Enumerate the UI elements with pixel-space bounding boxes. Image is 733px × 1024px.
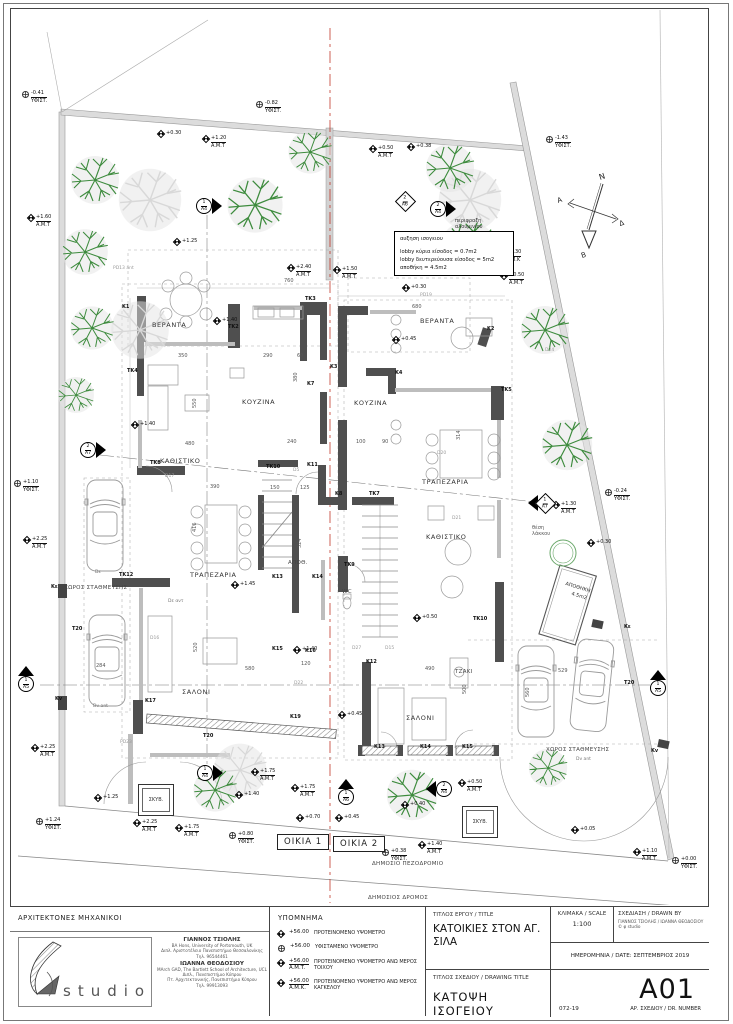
bin-label: ΣΚΥΒ.: [466, 810, 494, 834]
plan-label: D27: [352, 647, 361, 652]
ground-floor-note-box: αυξηση ισογειου lobby κύρια είσοδος = 0.…: [394, 231, 514, 276]
plan-label: 314: [457, 430, 463, 440]
target-elevation-icon: [278, 945, 285, 952]
plan-label: D20: [437, 452, 446, 457]
plan-label: 490: [425, 667, 435, 673]
plan-label: ΔΗΜΟΣΙΟΣ ΔΡΟΜΟΣ: [368, 895, 428, 901]
house1-label-box: ΟΙΚΙΑ 1: [277, 834, 329, 850]
elevation-marker: +0.45: [393, 336, 416, 343]
plan-label: 680: [412, 305, 422, 311]
elevation-marker: +2.25A.M.T: [134, 819, 157, 833]
proposed-elevation-icon: [338, 711, 346, 719]
studio-logo-text: studio: [63, 982, 151, 1000]
plan-label: D5: [293, 469, 299, 474]
section-marker: 2A6: [398, 194, 413, 209]
existing-elevation-icon: [22, 91, 29, 98]
plan-label: 90: [382, 440, 388, 446]
elevation-marker: +0.05: [572, 826, 595, 833]
elevation-marker: +1.60A.M.T: [28, 214, 51, 228]
plan-label: TK4: [127, 369, 138, 375]
house2-label-box: ΟΙΚΙΑ 2: [333, 836, 385, 852]
section-marker: 1A4: [197, 765, 223, 781]
plan-label: ΣΑΛΟΝΙ: [406, 715, 435, 722]
elevation-marker: +0.38: [408, 143, 431, 150]
plan-label: WC: [342, 589, 352, 595]
plan-label: D22: [294, 682, 303, 687]
plan-label: Kv: [55, 697, 62, 703]
proposed-elevation-icon: [291, 784, 299, 792]
date-value: ΗΜΕΡΟΜΗΝΙΑ / DATE: ΣΕΠΤΕΜΒΡΙΟΣ 2019: [571, 953, 690, 959]
plan-label: 380: [294, 372, 300, 382]
drawing-number-cell: A01 072-19 ΑΡ. ΣΧΕΔΙΟΥ / DR. NUMBER: [551, 969, 709, 1017]
section-marker: 1A5: [18, 666, 34, 692]
proposed-elevation-icon: [335, 814, 343, 822]
plan-label: 100: [356, 440, 366, 446]
drawing-number: A01: [639, 974, 695, 1005]
drawing-title-cell: ΤΙΤΛΟΣ ΣΧΕΔΙΟΥ / DRAWING TITLE ΚΑΤΟΨΗ ΙΣ…: [426, 969, 551, 1017]
plan-label: ΧΩΡΟΣ ΣΤΑΘΜΕΥΣΗΣ: [64, 585, 127, 591]
plan-label: K12: [366, 660, 377, 666]
elevation-marker: +1.75A.M.T: [292, 784, 315, 798]
legend-item: +56.00 ΠΡΟΤΕΙΝΟΜΕΝΟ ΥΨΟΜΕΤΡΟ: [278, 929, 417, 937]
plan-label: T20: [624, 681, 634, 687]
section-marker: 1A4: [196, 198, 222, 214]
drawn-by-value: ΓΙΑΝΝΟΣ ΤΣΙΟΛΗΣ / ΙΩΑΝΝΑ ΘΕΟΔΟΣΙΟΥ © φ s…: [618, 919, 705, 929]
plan-label: TK8: [150, 461, 161, 467]
legend-title: ΥΠΟΜΝΗΜΑ: [278, 914, 417, 922]
plan-label: 580: [245, 667, 255, 673]
proposed-elevation-icon: [458, 779, 466, 787]
proposed-elevation-icon: [333, 266, 341, 274]
plan-label: D24: [545, 349, 554, 354]
plan-label: 350: [178, 354, 188, 360]
proposed-elevation-icon: [133, 819, 141, 827]
plan-label: 125: [300, 486, 310, 492]
proposed-elevation-icon: [633, 848, 641, 856]
plan-label: K3: [330, 365, 337, 371]
elevation-marker: +0.00ΥΦΙΣΤ.: [672, 856, 697, 870]
elevation-marker: +1.24ΥΦΙΣΤ.: [36, 817, 61, 831]
section-marker: 2A7: [80, 442, 106, 458]
proposed-elevation-icon: [369, 145, 377, 153]
plan-label: TK9: [344, 563, 355, 569]
elevation-marker: +0.30: [588, 539, 611, 546]
proposed-elevation-icon: [131, 421, 139, 429]
elevation-marker: +1.10A.M.T: [634, 848, 657, 862]
plan-label: 480: [185, 442, 195, 448]
plan-label: 560: [526, 687, 532, 697]
note-line: lobby δευτερεύουσα είσοδος = 5m2: [400, 256, 508, 264]
elevation-marker: +0.45: [336, 814, 359, 821]
elevation-marker: +2.25A.M.T: [32, 744, 55, 758]
legend-item: +56.00 ΥΦΙΣΤΑΜΕΝΟ ΥΨΟΜΕΤΡΟ: [278, 943, 417, 952]
architects-heading: ΑΡΧΙΤΕΚΤΟΝΕΣ ΜΗΧΑΝΙΚΟΙ: [18, 914, 122, 922]
elevation-marker: +1.40: [214, 317, 237, 324]
elevation-marker: -1.43ΥΦΙΣΤ.: [546, 135, 571, 149]
plan-label: K14: [420, 745, 431, 751]
spot-elevation-icon: [277, 930, 285, 938]
proposed-elevation-icon: [213, 317, 221, 325]
plan-label: K17: [145, 699, 156, 705]
proposed-elevation-icon: [231, 581, 239, 589]
plan-label: D15: [385, 647, 394, 652]
plan-label: Dv ant: [576, 758, 591, 763]
plan-label: TK12: [119, 573, 133, 579]
proposed-elevation-icon: [571, 826, 579, 834]
plan-label: K15: [272, 647, 283, 653]
scale-cell: ΚΛΙΜΑΚΑ / SCALE 1:100: [551, 907, 614, 942]
proposed-elevation-icon: [27, 214, 35, 222]
plan-label: TK10: [473, 617, 487, 623]
plan-label: 284: [96, 664, 106, 670]
elevation-marker: -0.41ΥΦΙΣΤ.: [22, 90, 47, 104]
plan-label: TK7: [369, 492, 380, 498]
elevation-marker: +0.40: [402, 801, 425, 808]
plan-annotations: ΒΕΡΑΝΤΑΒΕΡΑΝΤΑΚΑΘΙΣΤΙΚΟΚΟΥΖΙΝΑΚΟΥΖΙΝΑΤΡΑ…: [0, 0, 733, 905]
legend-panel: ΥΠΟΜΝΗΜΑ +56.00 ΠΡΟΤΕΙΝΟΜΕΝΟ ΥΨΟΜΕΤΡΟ +5…: [270, 907, 426, 1016]
elevation-marker: +0.50: [414, 614, 437, 621]
project-title: ΚΑΤΟΙΚΙΕΣ ΣΤΟΝ ΑΓ. ΣΙΛΑ: [433, 923, 543, 949]
plan-label: TK5: [501, 388, 512, 394]
plan-label: περιφραξη αλουμινίου: [455, 218, 499, 230]
plan-label: Kε: [624, 625, 631, 631]
proposed-elevation-icon: [157, 130, 165, 138]
existing-elevation-icon: [36, 818, 43, 825]
elevation-marker: -0.82ΥΦΙΣΤ.: [256, 100, 281, 114]
section-marker: 1A5: [650, 670, 666, 696]
proposed-elevation-icon: [413, 614, 421, 622]
plan-label: K4: [395, 371, 402, 377]
elevation-marker: +2.40A.M.T: [288, 264, 311, 278]
project-number: 072-19: [559, 1006, 579, 1012]
plan-label: 150: [270, 486, 280, 492]
plan-label: ΔΗΜΟΣΙΟ ΠΕΖΟΔΡΟΜΙΟ: [372, 861, 443, 867]
plan-label: D16: [150, 637, 159, 642]
plan-label: 500: [463, 684, 469, 694]
existing-elevation-icon: [256, 101, 263, 108]
elevation-marker: +1.20A.M.T: [203, 135, 226, 149]
plan-label: T20: [72, 627, 82, 633]
plan-label: PD13 ant: [113, 267, 134, 272]
existing-elevation-icon: [605, 489, 612, 496]
section-marker: 1A6: [338, 779, 354, 805]
plan-label: K14: [312, 575, 323, 581]
elevation-marker: +0.50A.M.T: [370, 145, 393, 159]
plan-label: 760: [284, 279, 294, 285]
house2-label: ΟΙΚΙΑ 2: [340, 839, 378, 849]
plan-label: TK10: [266, 465, 280, 471]
proposed-elevation-icon: [418, 841, 426, 849]
section-marker: 2A4: [430, 201, 456, 217]
existing-elevation-icon: [229, 832, 236, 839]
elevation-marker: +0.70: [297, 814, 320, 821]
plan-label: TK2: [228, 325, 239, 331]
drawing-sheet: N A Δ B ΒΕΡΑΝΤΑΒΕΡΑΝΤΑΚΑΘΙΣΤΙΚΟΚΟΥΖΙΝΑΚΟ…: [0, 0, 733, 1024]
scale-label: ΚΛΙΜΑΚΑ / SCALE: [555, 911, 609, 917]
spot-elevation-icon: [277, 959, 285, 967]
elevation-marker: +0.80ΥΦΙΣΤ.: [229, 831, 254, 845]
plan-label: ΑΠΟΘ.: [288, 560, 308, 566]
existing-elevation-icon: [672, 857, 679, 864]
proposed-elevation-icon: [392, 336, 400, 344]
elevation-marker: +1.25: [95, 794, 118, 801]
bin-label: ΣΚΥΒ.: [142, 788, 170, 812]
drawn-by-cell: ΣΧΕΔΙΑΣΗ / DRAWN BY ΓΙΑΝΝΟΣ ΤΣΙΟΛΗΣ / ΙΩ…: [614, 907, 709, 942]
plan-label: Dε: [95, 571, 101, 576]
elevation-marker: +2.25A.M.T: [24, 536, 47, 550]
plan-label: ΧΩΡΟΣ ΣΤΑΘΜΕΥΣΗΣ: [546, 747, 609, 753]
note-title: αυξηση ισογειου: [400, 235, 508, 243]
proposed-elevation-icon: [31, 744, 39, 752]
bin-box-1: ΣΚΥΒ.: [138, 784, 174, 816]
plan-label: K13: [272, 575, 283, 581]
elevation-marker: +0.45: [339, 711, 362, 718]
proposed-elevation-icon: [287, 264, 295, 272]
proposed-elevation-icon: [173, 238, 181, 246]
elevation-marker: +1.10ΥΦΙΣΤ.: [14, 479, 39, 493]
project-title-cell: ΤΙΤΛΟΣ ΕΡΓΟΥ / TITLE ΚΑΤΟΙΚΙΕΣ ΣΤΟΝ ΑΓ. …: [426, 907, 551, 969]
plan-label: ΤΡΑΠΕΖΑΡΙΑ: [190, 572, 237, 579]
plan-label: TK3: [305, 297, 316, 303]
drawing-title-label: ΤΙΤΛΟΣ ΣΧΕΔΙΟΥ / DRAWING TITLE: [433, 975, 543, 981]
plan-label: Dv ant: [93, 705, 108, 710]
plan-label: 520: [194, 642, 200, 652]
elevation-marker: -0.24ΥΦΙΣΤ.: [605, 488, 630, 502]
proposed-elevation-icon: [175, 824, 183, 832]
scale-value: 1:100: [555, 920, 609, 928]
elevation-marker: +1.40A.M.T: [419, 841, 442, 855]
plan-label: PD23: [120, 741, 132, 746]
studio-logo: studio: [18, 937, 152, 1007]
plan-label: K7: [307, 382, 314, 388]
plan-label: ΤΡΑΠΕΖΑΡΙΑ: [422, 479, 469, 486]
plan-label: D21: [452, 517, 461, 522]
house1-label: ΟΙΚΙΑ 1: [284, 837, 322, 847]
plan-label: θέση λάκκου: [532, 525, 562, 537]
elevation-marker: +1.45: [232, 581, 255, 588]
elevation-marker: +0.38ΥΦΙΣΤ.: [382, 848, 407, 862]
drawing-title: ΚΑΤΟΨΗ ΙΣΟΓΕΙΟΥ: [433, 990, 543, 1018]
plan-label: 60: [297, 354, 303, 360]
proposed-elevation-icon: [235, 791, 243, 799]
plan-label: K8: [335, 492, 342, 498]
plan-label: 120: [301, 662, 311, 668]
spot-elevation-icon: [277, 979, 285, 987]
plan-label: K1: [122, 305, 129, 311]
plan-label: 416: [193, 522, 199, 532]
project-title-label: ΤΙΤΛΟΣ ΕΡΓΟΥ / TITLE: [433, 912, 543, 918]
proposed-elevation-icon: [23, 536, 31, 544]
elevation-marker: +1.75A.M.T: [176, 824, 199, 838]
plan-label: ΚΑΘΙΣΤΙΚΟ: [160, 458, 201, 465]
plan-label: ΒΕΡΑΝΤΑ: [152, 322, 186, 329]
proposed-elevation-icon: [407, 143, 415, 151]
drawing-number-label: ΑΡ. ΣΧΕΔΙΟΥ / DR. NUMBER: [630, 1006, 701, 1012]
plan-label: T20: [203, 734, 213, 740]
plan-label: ΣΑΛΟΝΙ: [182, 689, 211, 696]
plan-label: K13: [374, 745, 385, 751]
elevation-marker: +1.40: [236, 791, 259, 798]
plan-label: ΒΕΡΑΝΤΑ: [420, 318, 454, 325]
plan-label: ΤΖΑΚΙ: [455, 669, 473, 675]
plan-label: K11: [307, 463, 318, 469]
proposed-elevation-icon: [251, 768, 259, 776]
plan-label: PD19: [420, 294, 432, 299]
elevation-marker: +1.50A.M.T: [334, 266, 357, 280]
elevation-marker: +1.40: [132, 421, 155, 428]
architect-credentials: ΓΙΑΝΝΟΣ ΤΣΙΟΛΗΣ BA Hons, University of P…: [156, 935, 268, 988]
plan-label: 324: [298, 538, 304, 548]
plan-label: 240: [287, 440, 297, 446]
plan-label: 550: [193, 398, 199, 408]
plan-label: Kv: [651, 749, 658, 755]
plan-label: 529: [558, 669, 568, 675]
elevation-marker: +1.75A.M.T: [252, 768, 275, 782]
plan-label: K15: [462, 745, 473, 751]
bin-box-2: ΣΚΥΒ.: [462, 806, 498, 838]
plan-label: ΚΟΥΖΙΝΑ: [354, 400, 387, 407]
proposed-elevation-icon: [296, 814, 304, 822]
elevation-marker: +0.30: [403, 284, 426, 291]
elevation-marker: +0.30: [158, 130, 181, 137]
proposed-elevation-icon: [401, 801, 409, 809]
existing-elevation-icon: [14, 480, 21, 487]
plan-label: ΚΟΥΖΙΝΑ: [242, 399, 275, 406]
plan-label: ΚΑΘΙΣΤΙΚΟ: [426, 534, 467, 541]
plan-label: 290: [263, 354, 273, 360]
plan-label: K2: [487, 327, 494, 333]
architects-panel: ΑΡΧΙΤΕΚΤΟΝΕΣ ΜΗΧΑΝΙΚΟΙ studio ΓΙΑΝΝΟΣ ΤΣ…: [10, 907, 270, 1016]
legend-item: +56.00A.M.K. ΠΡΟΤΕΙΝΟΜΕΝΟ ΥΨΟΜΕΤΡΟ ΑΝΩ Μ…: [278, 978, 417, 992]
elevation-marker: +1.40: [294, 646, 317, 653]
proposed-elevation-icon: [202, 135, 210, 143]
proposed-elevation-icon: [587, 539, 595, 547]
proposed-elevation-icon: [293, 646, 301, 654]
existing-elevation-icon: [546, 136, 553, 143]
elevation-marker: +1.25: [174, 238, 197, 245]
plan-label: Dε αντ: [168, 600, 184, 605]
proposed-elevation-icon: [402, 284, 410, 292]
date-cell: ΗΜΕΡΟΜΗΝΙΑ / DATE: ΣΕΠΤΕΜΒΡΙΟΣ 2019: [551, 942, 709, 969]
proposed-elevation-icon: [94, 794, 102, 802]
drawn-by-label: ΣΧΕΔΙΑΣΗ / DRAWN BY: [618, 911, 705, 917]
section-marker: 1A7: [528, 495, 553, 511]
plan-label: K19: [290, 715, 301, 721]
plan-label: Kε: [51, 585, 58, 591]
title-info-panel: ΤΙΤΛΟΣ ΕΡΓΟΥ / TITLE ΚΑΤΟΙΚΙΕΣ ΣΤΟΝ ΑΓ. …: [426, 907, 709, 1016]
legend-item: +56.00A.M.T. ΠΡΟΤΕΙΝΟΜΕΝΟ ΥΨΟΜΕΤΡΟ ΑΝΩ Μ…: [278, 958, 417, 972]
plan-label: D17: [165, 475, 174, 480]
section-marker: 2A4: [426, 781, 452, 797]
note-line: αποθήκη = 4.5m2: [400, 264, 508, 272]
title-block: ΑΡΧΙΤΕΚΤΟΝΕΣ ΜΗΧΑΝΙΚΟΙ studio ΓΙΑΝΝΟΣ ΤΣ…: [10, 906, 709, 1016]
note-line: lobby κύρια είσοδος = 0.7m2: [400, 248, 508, 256]
plan-label: 390: [210, 485, 220, 491]
elevation-marker: +0.50A.M.T: [459, 779, 482, 793]
